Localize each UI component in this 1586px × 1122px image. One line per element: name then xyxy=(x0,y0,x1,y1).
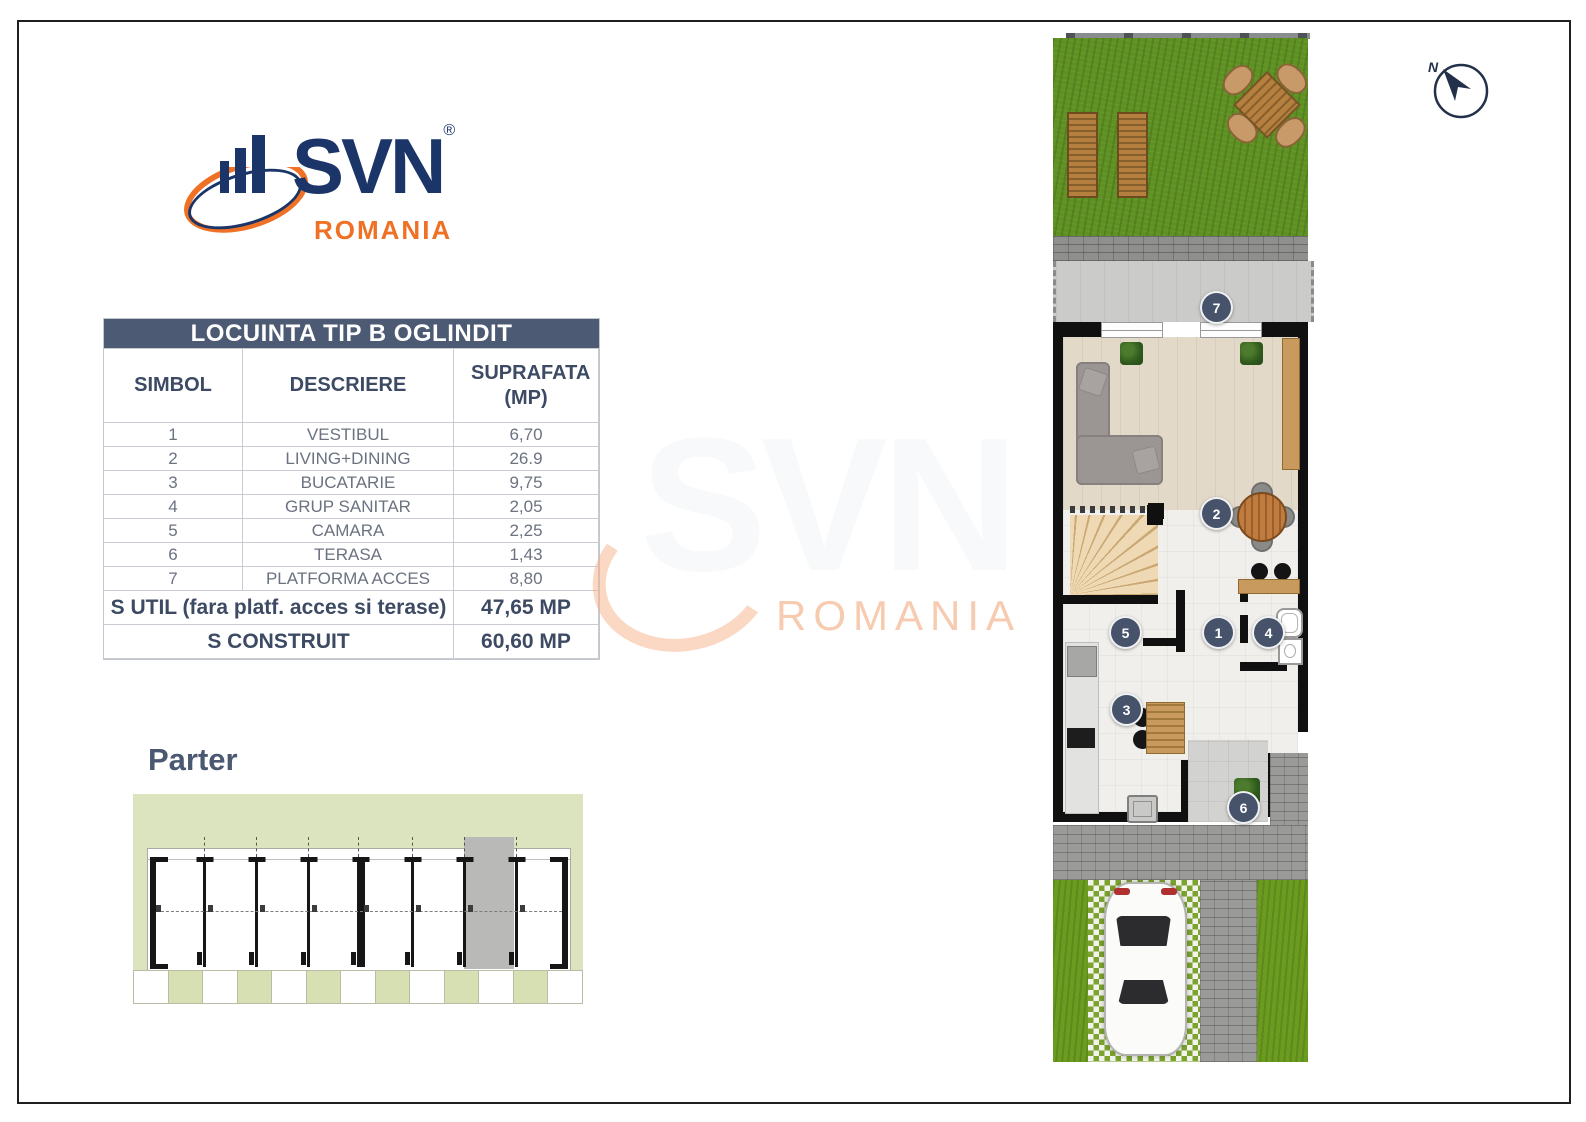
kitchen-sink xyxy=(1127,795,1158,823)
refrigerator xyxy=(1067,646,1097,677)
table-row-symbol: 2 xyxy=(104,447,243,471)
driveway-path xyxy=(1200,880,1257,1062)
siteplan-parking-strip xyxy=(133,970,583,1004)
col-header-simbol: SIMBOL xyxy=(104,349,243,423)
potted-plant xyxy=(1240,342,1263,365)
room-marker-grup-sanitar: 4 xyxy=(1252,616,1285,649)
wall-segment xyxy=(255,861,258,967)
kitchen-table xyxy=(1146,702,1185,754)
logo-brand-text: SVN® xyxy=(292,123,455,205)
car-rear-window xyxy=(1118,980,1169,1004)
logo-region-text: ROMANIA xyxy=(314,215,452,246)
car-taillight xyxy=(1114,888,1130,895)
table-row-area: 8,80 xyxy=(454,567,599,591)
wall-segment xyxy=(463,861,466,967)
s-util-value: 47,65 MP xyxy=(454,591,599,625)
table-row-symbol: 1 xyxy=(104,423,243,447)
wall-segment xyxy=(1143,638,1185,646)
wall-segment xyxy=(150,857,156,969)
sun-lounger xyxy=(1117,112,1148,198)
table-row-symbol: 5 xyxy=(104,519,243,543)
room-marker-camara: 5 xyxy=(1109,616,1142,649)
wall-segment xyxy=(515,861,518,967)
room-marker-vestibul: 1 xyxy=(1202,616,1235,649)
winder-staircase xyxy=(1070,515,1158,595)
stove xyxy=(1067,728,1095,748)
table-row-symbol: 3 xyxy=(104,471,243,495)
table-title: LOCUINTA TIP B OGLINDIT xyxy=(104,319,599,349)
wall-segment xyxy=(1240,615,1248,643)
table-row-description: VESTIBUL xyxy=(243,423,454,447)
round-dining-table xyxy=(1237,492,1287,542)
table-row-area: 6,70 xyxy=(454,423,599,447)
bar-stool xyxy=(1274,563,1291,580)
siteplan-fixture-marks xyxy=(156,905,562,912)
area-table: LOCUINTA TIP B OGLINDIT SIMBOL DESCRIERE… xyxy=(103,318,600,660)
table-row-description: CAMARA xyxy=(243,519,454,543)
table-row-area: 9,75 xyxy=(454,471,599,495)
compass-icon: N xyxy=(1422,52,1496,126)
room-marker-terasa: 6 xyxy=(1227,791,1260,824)
room-marker-platforma: 7 xyxy=(1200,291,1233,324)
wall-segment xyxy=(1063,595,1158,604)
logo-bar-icon xyxy=(220,161,229,193)
access-platform xyxy=(1053,261,1314,322)
registered-mark: ® xyxy=(443,122,455,139)
table-row-description: TERASA xyxy=(243,543,454,567)
wood-counter xyxy=(1282,338,1300,470)
car-taillight xyxy=(1161,888,1177,895)
table-row-description: GRUP SANITAR xyxy=(243,495,454,519)
sun-lounger xyxy=(1067,112,1098,198)
wall-segment xyxy=(307,861,310,967)
car-windshield xyxy=(1116,916,1171,946)
wall-segment xyxy=(562,857,568,969)
rear-walkway xyxy=(1053,825,1308,880)
col-header-suprafata: SUPRAFATA (MP) xyxy=(454,349,599,423)
table-row-description: PLATFORMA ACCES xyxy=(243,567,454,591)
col-header-descriere: DESCRIERE xyxy=(243,349,454,423)
grass-strip xyxy=(1053,880,1088,1062)
side-path xyxy=(1270,753,1308,830)
parked-car xyxy=(1104,882,1187,1056)
logo-bar-icon xyxy=(252,135,265,193)
table-row-description: LIVING+DINING xyxy=(243,447,454,471)
table-row-area: 2,25 xyxy=(454,519,599,543)
logo-bar-icon xyxy=(235,148,246,193)
table-row-area: 1,43 xyxy=(454,543,599,567)
table-row-area: 2,05 xyxy=(454,495,599,519)
table-row-symbol: 6 xyxy=(104,543,243,567)
siteplan-building xyxy=(147,848,571,972)
floorplan-sheet: { "logo": { "brand": "SVN", "registered"… xyxy=(0,0,1586,1122)
wall-segment xyxy=(203,861,206,967)
wall-segment xyxy=(357,861,365,967)
paved-walkway xyxy=(1053,236,1308,261)
svn-logo: SVN® ROMANIA xyxy=(190,115,490,260)
s-util-label: S UTIL (fara platf. acces si terase) xyxy=(104,591,454,625)
table-row-area: 26.9 xyxy=(454,447,599,471)
window xyxy=(1200,322,1262,338)
s-construit-value: 60,60 MP xyxy=(454,625,599,659)
table-row-description: BUCATARIE xyxy=(243,471,454,495)
compass-north-label: N xyxy=(1428,59,1439,75)
window xyxy=(1101,322,1163,338)
bar-table xyxy=(1238,579,1300,594)
site-plan-thumbnail xyxy=(133,788,583,1006)
main-floor-plan: 7 2 5 1 4 3 6 xyxy=(1048,30,1310,1062)
svn-logo-icon xyxy=(190,133,298,223)
floor-label: Parter xyxy=(148,742,238,778)
bar-stool xyxy=(1251,563,1268,580)
room-marker-living: 2 xyxy=(1200,497,1233,530)
wall-segment xyxy=(411,861,414,967)
garden xyxy=(1053,38,1308,236)
wall-segment xyxy=(1053,322,1063,822)
table-row-symbol: 7 xyxy=(104,567,243,591)
potted-plant xyxy=(1120,342,1143,365)
grass-strip xyxy=(1257,880,1308,1062)
stair-newel xyxy=(1147,505,1163,525)
north-compass: N xyxy=(1422,52,1496,126)
table-row-symbol: 4 xyxy=(104,495,243,519)
s-construit-label: S CONSTRUIT xyxy=(104,625,454,659)
room-marker-bucatarie: 3 xyxy=(1110,693,1143,726)
stair-guide-line xyxy=(1070,506,1150,513)
